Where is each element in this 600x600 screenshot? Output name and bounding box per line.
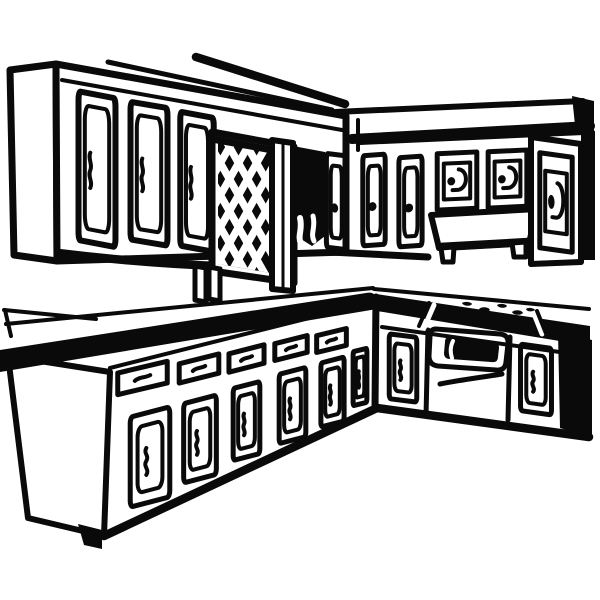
cabinet-bottom-band bbox=[330, 252, 428, 257]
window-post bbox=[195, 266, 206, 302]
hood-foot bbox=[512, 242, 526, 257]
drawer-front bbox=[118, 361, 168, 394]
tall-cabinet-side bbox=[581, 128, 595, 260]
cabinet-side-panel bbox=[10, 64, 57, 261]
base-cabinet-door bbox=[389, 334, 417, 402]
upper-cabinets-right bbox=[326, 96, 595, 264]
backsplash-lip bbox=[4, 310, 96, 319]
kitchen-illustration bbox=[0, 0, 600, 600]
base-cabinet-door bbox=[130, 407, 170, 507]
counter-corner-edge bbox=[375, 297, 376, 408]
hood-foot bbox=[441, 247, 454, 262]
burner-mark bbox=[462, 302, 472, 306]
burner-mark bbox=[512, 310, 523, 315]
drawer-front bbox=[179, 354, 219, 383]
burner-mark bbox=[497, 304, 507, 308]
soffit-top-edge bbox=[335, 101, 583, 112]
oven-window-highlight bbox=[451, 341, 453, 358]
base-side-panel-dark bbox=[558, 332, 592, 438]
oven-drawer-line bbox=[440, 374, 502, 384]
corner-pillar bbox=[272, 140, 293, 291]
base-cabinet-door bbox=[321, 357, 344, 427]
base-cabinet-door bbox=[279, 367, 306, 443]
base-side-panel bbox=[8, 356, 110, 536]
shadow-highlight bbox=[300, 218, 301, 244]
base-cabinet-door bbox=[184, 395, 217, 483]
window-post bbox=[209, 267, 220, 301]
drawer-front bbox=[275, 336, 307, 361]
base-cabinet-door bbox=[233, 382, 260, 461]
upper-cabinet-door bbox=[488, 150, 527, 208]
base-cabinet-door bbox=[353, 348, 367, 405]
window-posts bbox=[195, 266, 220, 302]
upper-cabinet-door bbox=[363, 154, 385, 246]
shadow-highlight bbox=[313, 216, 314, 241]
base-cabinet-door bbox=[521, 344, 552, 415]
range-hood bbox=[431, 209, 537, 262]
tall-cabinet bbox=[531, 128, 595, 264]
upper-cabinet-door bbox=[437, 152, 477, 210]
drawer-front bbox=[229, 345, 264, 372]
drawer-front bbox=[317, 329, 347, 353]
upper-cabinet-door bbox=[399, 156, 422, 247]
kitchen-line-art bbox=[0, 0, 600, 600]
base-bottom-edge bbox=[104, 408, 589, 536]
